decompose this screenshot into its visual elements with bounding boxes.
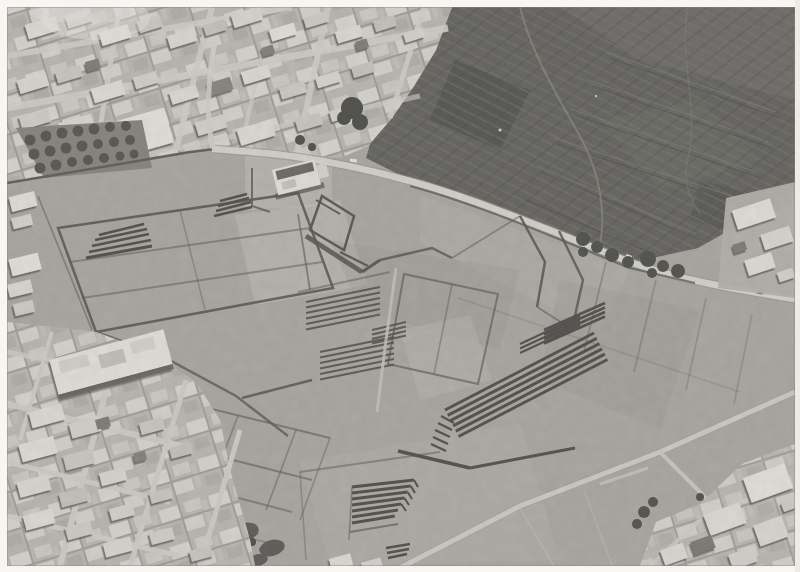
scanned-aerial-photo: black-and-white aerial photograph [0, 0, 800, 572]
border-right-edge [795, 0, 800, 572]
film-grain-coarse [7, 7, 795, 566]
aerial-photograph: black-and-white aerial photograph [0, 0, 800, 572]
photo-emulsion [7, 0, 797, 572]
